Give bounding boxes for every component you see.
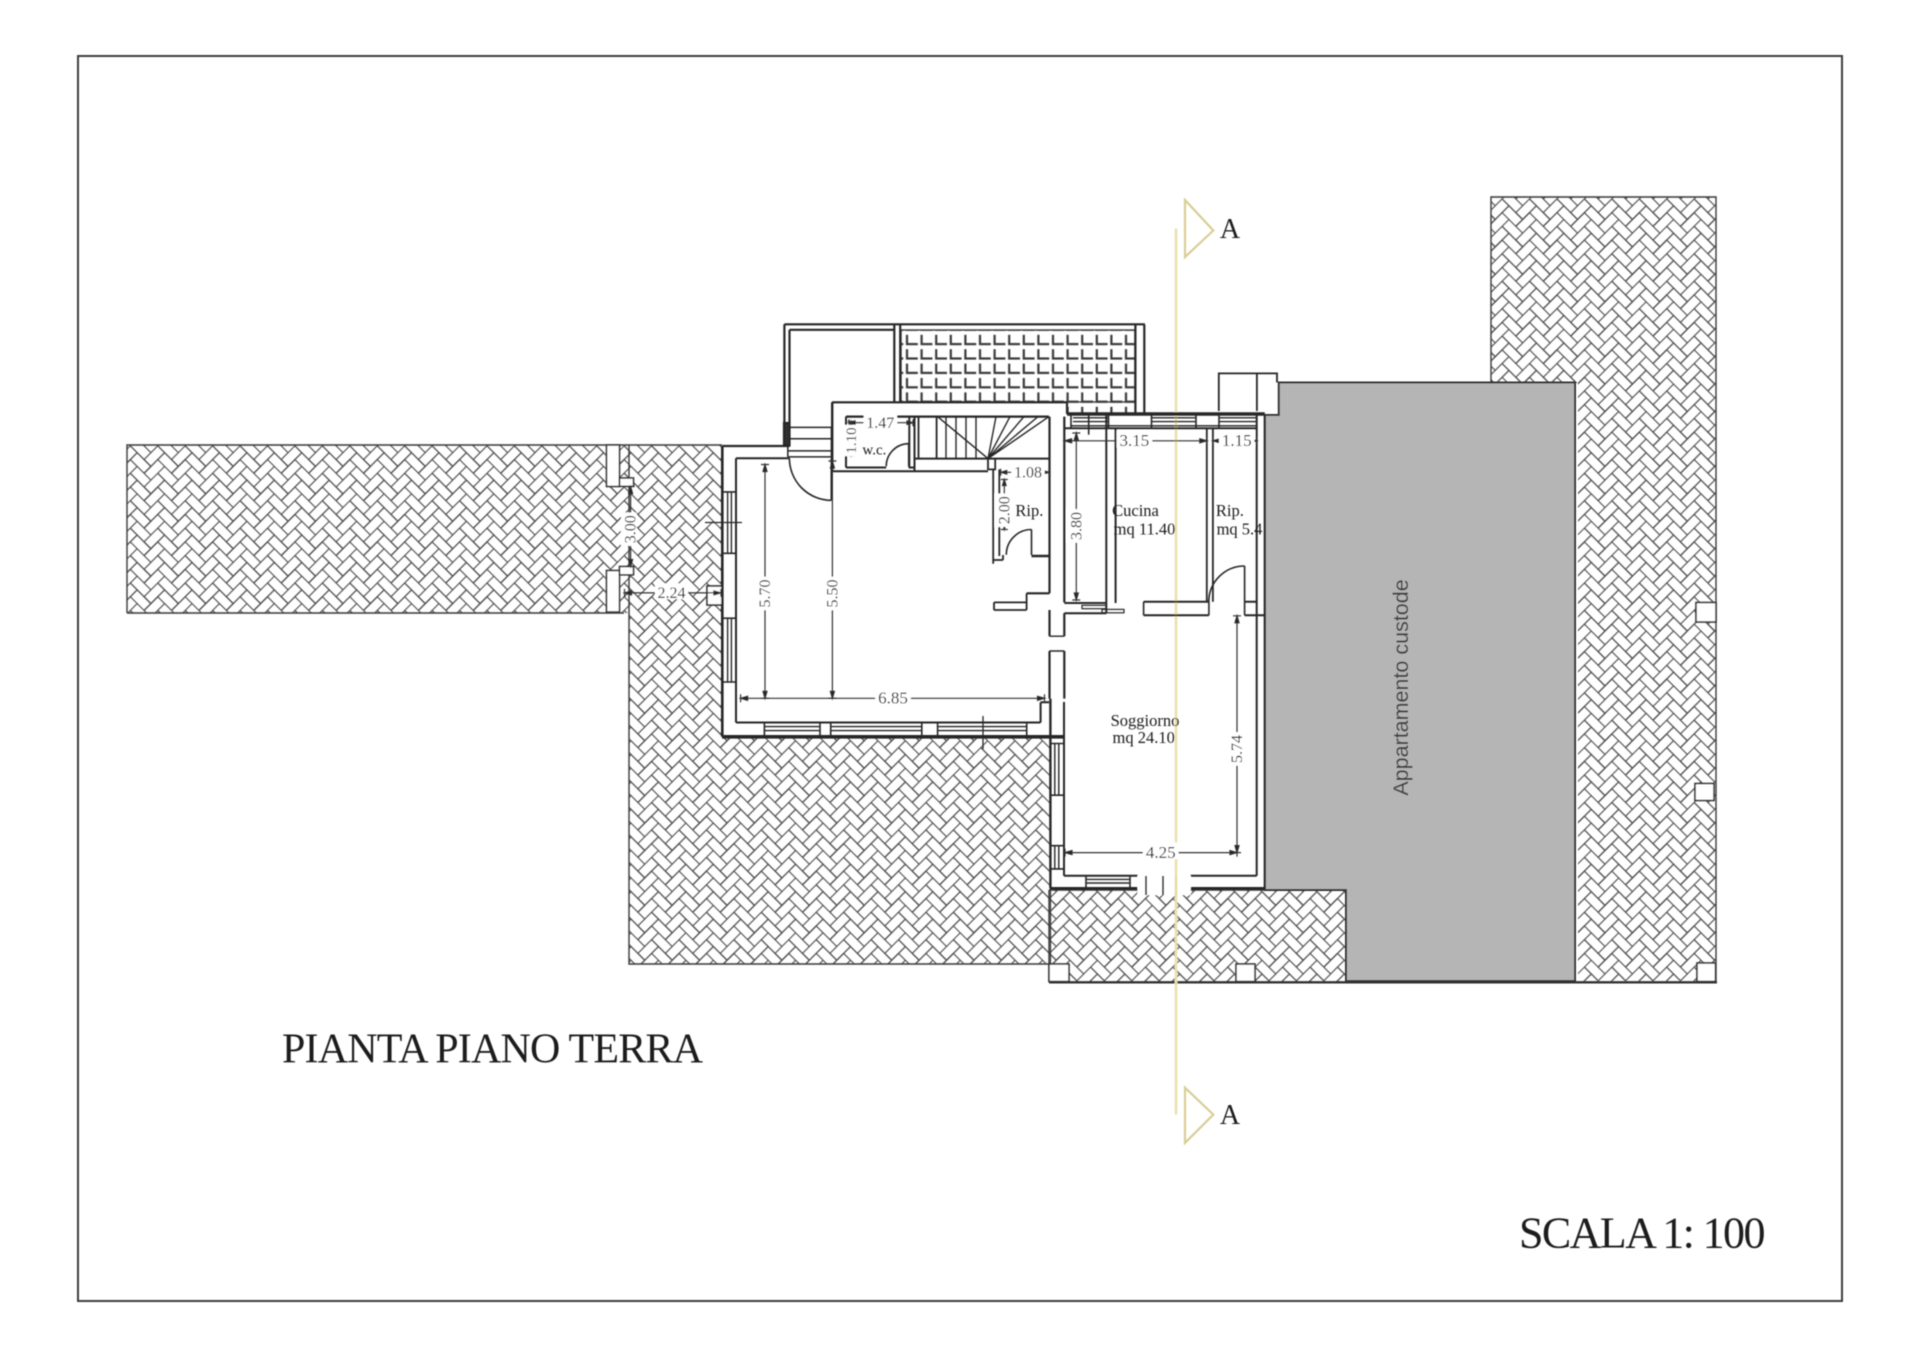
- svg-text:mq 24.10: mq 24.10: [1113, 728, 1175, 747]
- svg-text:mq 11.40: mq 11.40: [1114, 520, 1176, 539]
- svg-text:1.15: 1.15: [1222, 431, 1252, 450]
- svg-text:mq 5.4: mq 5.4: [1217, 520, 1263, 539]
- svg-text:Rip.: Rip.: [1015, 501, 1043, 520]
- svg-text:5.50: 5.50: [825, 580, 842, 608]
- svg-text:5.74: 5.74: [1229, 735, 1246, 763]
- svg-text:PIANTA PIANO TERRA: PIANTA PIANO TERRA: [282, 1027, 704, 1073]
- svg-text:SCALA 1: 100: SCALA 1: 100: [1519, 1209, 1764, 1258]
- svg-text:5.70: 5.70: [757, 580, 774, 608]
- svg-text:3.15: 3.15: [1120, 431, 1150, 450]
- svg-text:Cucina: Cucina: [1112, 501, 1159, 520]
- svg-text:3.00: 3.00: [623, 515, 640, 543]
- svg-text:Appartamento custode: Appartamento custode: [1389, 579, 1413, 795]
- svg-text:6.85: 6.85: [878, 689, 908, 708]
- svg-text:4.25: 4.25: [1146, 843, 1176, 862]
- svg-text:A: A: [1220, 1100, 1241, 1131]
- svg-text:A: A: [1220, 214, 1241, 245]
- svg-text:3.80: 3.80: [1068, 512, 1085, 540]
- svg-text:Rip.: Rip.: [1216, 501, 1244, 520]
- svg-text:2.00: 2.00: [996, 496, 1013, 524]
- svg-text:w.c.: w.c.: [862, 443, 886, 459]
- svg-text:1.47: 1.47: [866, 415, 894, 432]
- svg-text:1.08: 1.08: [1014, 464, 1042, 481]
- svg-text:2.24: 2.24: [658, 585, 686, 602]
- svg-text:1.10: 1.10: [844, 427, 860, 453]
